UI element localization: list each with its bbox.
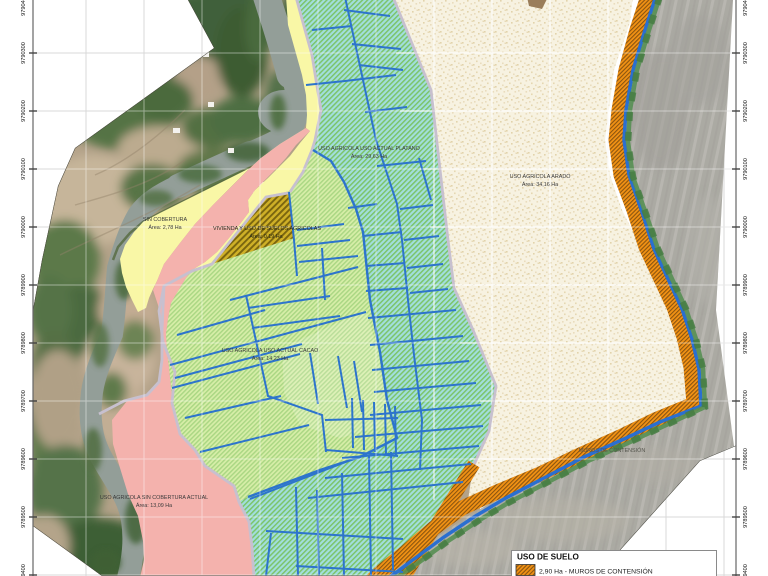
svg-text:9789700: 9789700: [21, 390, 27, 412]
svg-text:9789600: 9789600: [21, 448, 27, 470]
svg-text:9790100: 9790100: [21, 158, 27, 180]
svg-text:USO AGRICOLA SIN COBERTURA ACT: USO AGRICOLA SIN COBERTURA ACTUAL: [100, 495, 208, 501]
svg-text:9789400: 9789400: [743, 564, 749, 576]
svg-text:9790200: 9790200: [21, 100, 27, 122]
svg-text:9790400: 9790400: [21, 0, 27, 16]
svg-text:VIVIENDA Y USO DE SUELOS AGRIC: VIVIENDA Y USO DE SUELOS AGRICOLAS: [213, 226, 321, 232]
svg-text:9790300: 9790300: [743, 42, 749, 64]
svg-text:USO DE SUELO: USO DE SUELO: [517, 553, 580, 562]
svg-text:2,90 Ha - MUROS DE CONTENSIÓN: 2,90 Ha - MUROS DE CONTENSIÓN: [539, 567, 653, 576]
svg-text:Área: 29,63 Ha: Área: 29,63 Ha: [351, 153, 387, 160]
svg-text:9789900: 9789900: [743, 274, 749, 296]
svg-text:9789700: 9789700: [743, 390, 749, 412]
svg-text:9790200: 9790200: [743, 100, 749, 122]
svg-text:9790100: 9790100: [743, 158, 749, 180]
svg-text:USO AGRICOLA USO ACTUAL PLATAN: USO AGRICOLA USO ACTUAL PLATANO: [318, 146, 420, 152]
svg-text:9789400: 9789400: [21, 564, 27, 576]
svg-text:9789600: 9789600: [743, 448, 749, 470]
svg-text:9789800: 9789800: [743, 332, 749, 354]
svg-text:9790000: 9790000: [21, 216, 27, 238]
svg-text:9789900: 9789900: [21, 274, 27, 296]
svg-text:9789800: 9789800: [21, 332, 27, 354]
svg-text:Área: 0,19 Ha: Área: 0,19 Ha: [249, 233, 282, 240]
svg-text:Área: 13,09 Ha: Área: 13,09 Ha: [136, 502, 172, 509]
svg-text:USO AGRICOLA ARADO: USO AGRICOLA ARADO: [510, 174, 571, 180]
svg-text:Área: 2,78 Ha: Área: 2,78 Ha: [148, 224, 181, 231]
svg-text:9790400: 9790400: [743, 0, 749, 16]
svg-text:Área: 14,23 Ha: Área: 14,23 Ha: [252, 355, 288, 362]
svg-text:SIN COBERTURA: SIN COBERTURA: [143, 217, 188, 223]
svg-text:9789500: 9789500: [743, 506, 749, 528]
svg-text:MUROS DE CONTENSIÓN: MUROS DE CONTENSIÓN: [579, 447, 646, 454]
svg-text:Área: 34,16 Ha: Área: 34,16 Ha: [522, 181, 558, 188]
svg-text:9790300: 9790300: [21, 42, 27, 64]
svg-text:9789500: 9789500: [21, 506, 27, 528]
svg-text:USO AGRICOLA USO ACTUAL CACAO: USO AGRICOLA USO ACTUAL CACAO: [222, 348, 319, 354]
svg-text:9790000: 9790000: [743, 216, 749, 238]
